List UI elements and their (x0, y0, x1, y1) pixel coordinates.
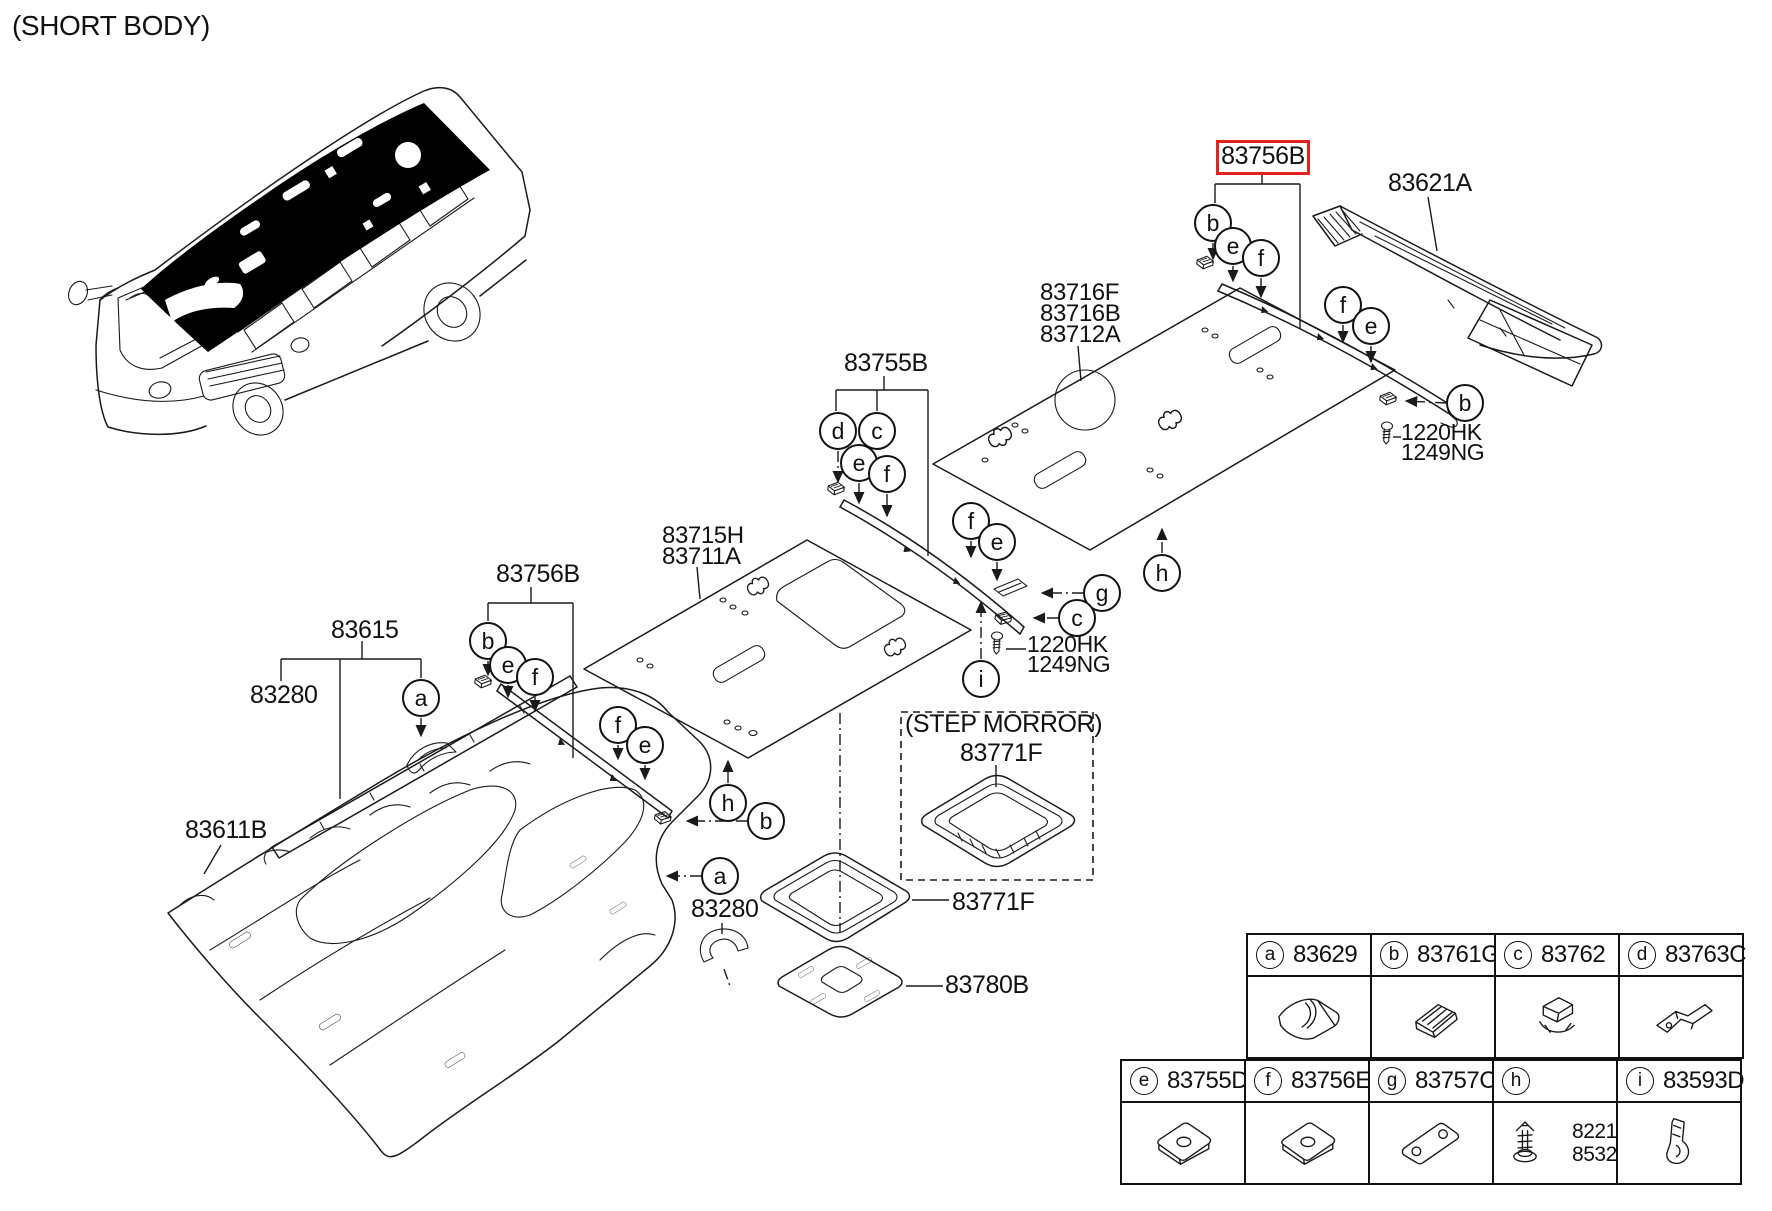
square-pad-icon (1264, 1103, 1350, 1184)
legend-cell-f[interactable]: f83756E (1244, 1059, 1370, 1185)
label-short-body: (SHORT BODY) (12, 12, 210, 41)
corner-trim-piece (407, 743, 456, 773)
part-label-83771f[interactable]: 83771F (952, 890, 1034, 916)
legend-part-number-f: 83756E (1291, 1067, 1371, 1095)
roof-vent-plate (778, 947, 902, 1018)
center-clip-piece (700, 929, 748, 962)
legend-letter-c: c (1504, 941, 1532, 969)
part-label-83771f-step[interactable]: 83771F (960, 741, 1042, 767)
part-label-1220hk-1249ng-center[interactable]: 1220HK 1249NG (1027, 634, 1110, 674)
part-label-83715h-83711a[interactable]: 83715H 83711A (662, 525, 744, 567)
callout-i-14: i (962, 660, 1000, 698)
part-label-1220hk-1249ng-right[interactable]: 1220HK 1249NG (1401, 422, 1484, 462)
callout-b-5: b (1446, 384, 1484, 422)
callout-a-21: a (402, 679, 440, 717)
legend-letter-g: g (1378, 1067, 1406, 1095)
headlining (168, 687, 711, 1156)
callout-e-11: e (978, 523, 1016, 561)
part-label-83716f-83716b-83712a[interactable]: 83716F 83716B 83712A (1040, 282, 1120, 345)
legend-part-number-a: 83629 (1293, 941, 1357, 969)
legend-cell-e[interactable]: e83755D (1120, 1059, 1246, 1185)
stand-clip-icon (1636, 1103, 1722, 1184)
label-step-morror: (STEP MORROR) (905, 712, 1102, 738)
callout-leaders (421, 243, 1446, 989)
legend-letter-f: f (1254, 1067, 1282, 1095)
part-label-83755b[interactable]: 83755B (844, 351, 928, 377)
part-label-83615[interactable]: 83615 (331, 618, 399, 644)
legend-cell-g[interactable]: g83757C (1368, 1059, 1494, 1185)
legend-letter-b: b (1380, 941, 1408, 969)
legend-cell-d[interactable]: d83763C (1618, 933, 1744, 1059)
callout-c-13: c (1058, 599, 1096, 637)
callout-h-15: h (1143, 554, 1181, 592)
roof-rail-rear (1196, 255, 1457, 444)
legend-cell-a[interactable]: a83629 (1246, 933, 1372, 1059)
part-label-83611b[interactable]: 83611B (185, 818, 267, 844)
square-pad-icon (1140, 1103, 1226, 1184)
legend-letter-i: i (1626, 1067, 1654, 1095)
legend-cell-h[interactable]: h8221285326 (1492, 1059, 1618, 1185)
legend-letter-a: a (1256, 941, 1284, 969)
part-label-83280-front[interactable]: 83280 (250, 683, 318, 709)
callout-h-23: h (709, 784, 747, 822)
ribbed-clip-icon (1390, 977, 1476, 1058)
legend-part-number-g: 83757C (1415, 1067, 1496, 1095)
roof-panel-rear (933, 288, 1395, 550)
part-label-83780b[interactable]: 83780B (945, 973, 1029, 999)
part-label-83756b-highlighted[interactable]: 83756B (1216, 140, 1310, 175)
roll-pad-icon (1266, 977, 1352, 1058)
part-label-83756b-left[interactable]: 83756B (496, 562, 580, 588)
claw-clip-icon (1514, 977, 1600, 1058)
legend-letter-d: d (1628, 941, 1656, 969)
legend-cell-c[interactable]: c83762 (1494, 933, 1620, 1059)
legend-part-number-e: 83755D (1167, 1067, 1248, 1095)
callout-e-4: e (1352, 307, 1390, 345)
angle-bracket-icon (1638, 977, 1724, 1058)
legend-part-number-b: 83761G (1417, 941, 1499, 969)
sunroof-garnish (761, 853, 910, 942)
callout-f-18: f (516, 658, 554, 696)
callout-f-9: f (868, 455, 906, 493)
part-label-83280-center[interactable]: 83280 (691, 897, 759, 923)
legend-cell-i[interactable]: i83593D (1616, 1059, 1742, 1185)
callout-e-20: e (626, 726, 664, 764)
parts-diagram-page: (SHORT BODY)83756B83621A83716F 83716B 83… (0, 0, 1772, 1211)
callout-b-24: b (747, 802, 785, 840)
leader-lines (204, 171, 1437, 986)
bus-illustration (65, 88, 530, 445)
plate-two-holes-icon (1388, 1103, 1474, 1184)
part-label-83621a[interactable]: 83621A (1388, 171, 1472, 197)
legend-part-number-d: 83763C (1665, 941, 1746, 969)
legend-part-number-c: 83762 (1541, 941, 1605, 969)
push-rivet-icon (1482, 1103, 1568, 1184)
callout-a-22: a (701, 857, 739, 895)
legend-letter-h: h (1502, 1067, 1530, 1095)
callout-f-2: f (1242, 239, 1280, 277)
legend-cell-b[interactable]: b83761G (1370, 933, 1496, 1059)
legend-letter-e: e (1130, 1067, 1158, 1095)
legend-part-number-i: 83593D (1663, 1067, 1744, 1095)
